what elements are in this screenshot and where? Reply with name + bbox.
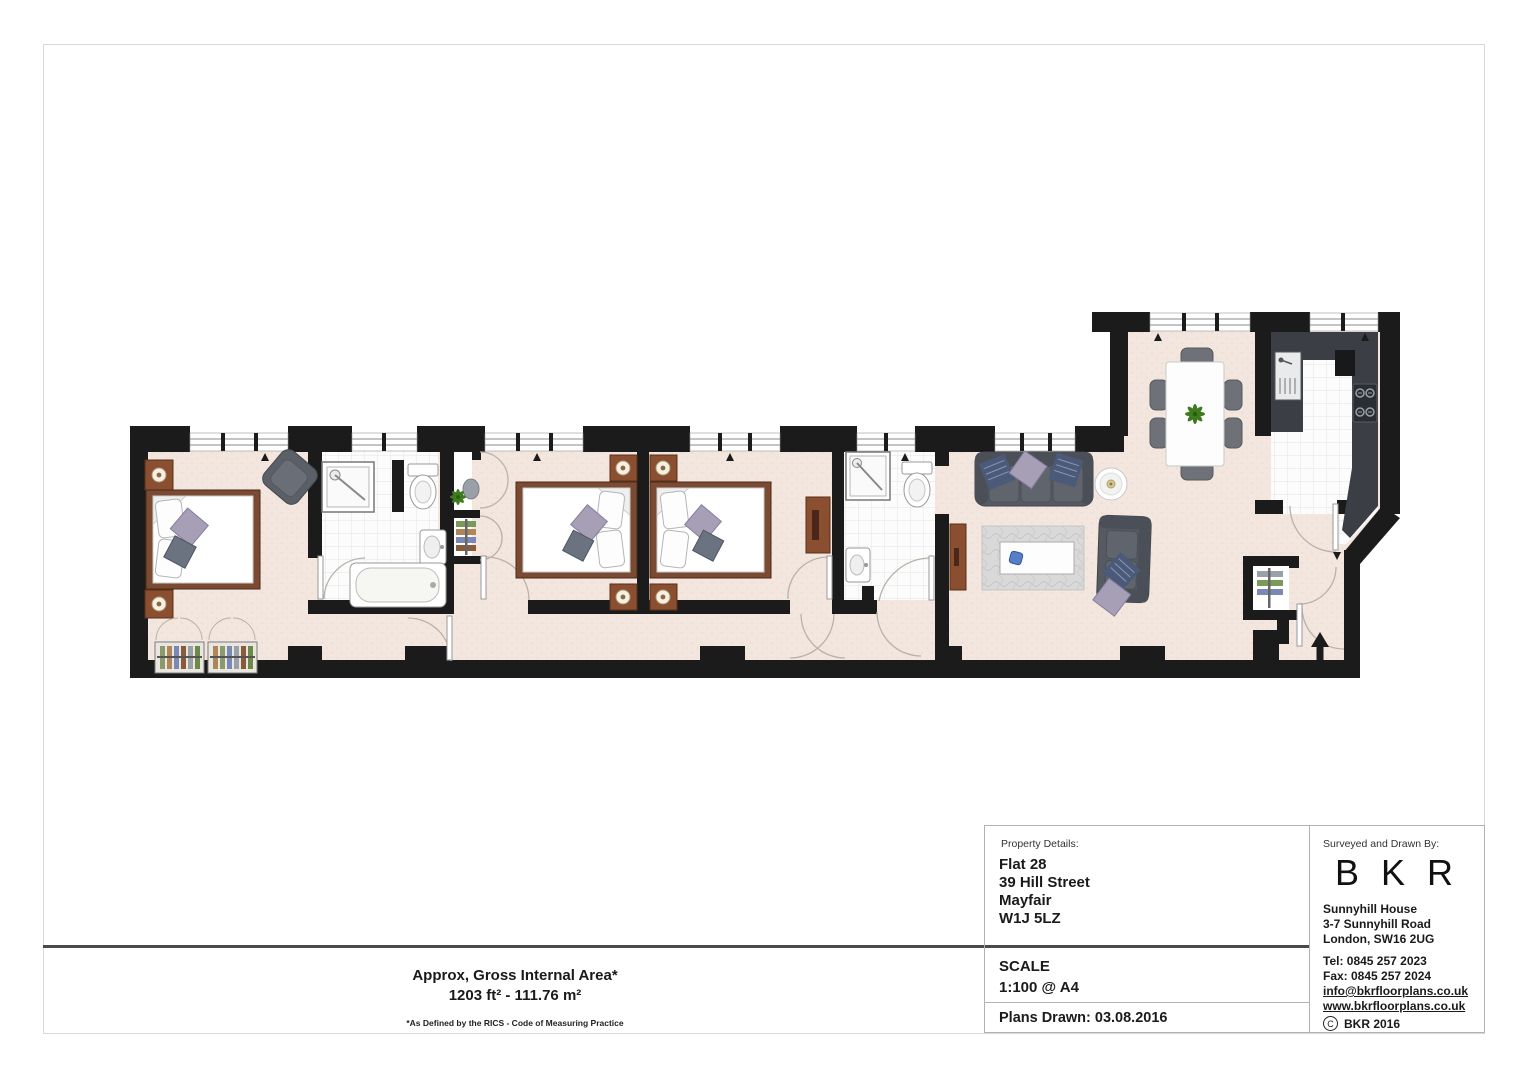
surveyor-label: Surveyed and Drawn By: xyxy=(1323,838,1439,850)
gross-internal-area-note: Approx, Gross Internal Area* 1203 ft² - … xyxy=(290,966,740,1028)
surveyor-address-line: Sunnyhill House xyxy=(1323,902,1434,917)
area-value: 1203 ft² - 111.76 m² xyxy=(290,986,740,1006)
sink-unit-icon xyxy=(1275,352,1301,400)
copyright-text: BKR 2016 xyxy=(1344,1017,1400,1031)
property-line: Flat 28 xyxy=(999,856,1090,874)
bkr-logo: B K R xyxy=(1310,852,1484,894)
surveyor-tel: Tel: 0845 257 2023 xyxy=(1323,954,1468,969)
floorplan-sheet: { "area_note": { "line1": "Approx, Gross… xyxy=(0,0,1528,1080)
surveyor-contact: Tel: 0845 257 2023 Fax: 0845 257 2024 in… xyxy=(1323,954,1468,1014)
plans-drawn-date: Plans Drawn: 03.08.2016 xyxy=(999,1010,1167,1026)
surveyor-email-link[interactable]: info@bkrfloorplans.co.uk xyxy=(1323,984,1468,999)
hanging-rail-icon xyxy=(456,519,476,555)
surveyor-address-line: London, SW16 2UG xyxy=(1323,932,1434,947)
area-footnote: *As Defined by the RICS - Code of Measur… xyxy=(290,1018,740,1028)
bathtub-icon xyxy=(350,563,446,607)
bedside-table-icon xyxy=(145,590,173,618)
double-bed-icon xyxy=(516,482,637,578)
surveyor-address-line: 3-7 Sunnyhill Road xyxy=(1323,917,1434,932)
basin-icon xyxy=(846,548,870,582)
sofa-3-seat-icon xyxy=(975,451,1093,506)
scale-divider xyxy=(985,1002,1309,1003)
sofa-2-seat-icon xyxy=(1092,515,1151,617)
copyright-line: C BKR 2016 xyxy=(1323,1016,1400,1031)
shower-icon xyxy=(322,462,374,512)
surveyor-website-link[interactable]: www.bkrfloorplans.co.uk xyxy=(1323,999,1468,1014)
area-title: Approx, Gross Internal Area* xyxy=(290,966,740,986)
shower-icon xyxy=(846,452,890,500)
property-line: 39 Hill Street xyxy=(999,874,1090,892)
scale-value: 1:100 @ A4 xyxy=(999,977,1079,998)
surveyor-box: Surveyed and Drawn By: B K R Sunnyhill H… xyxy=(1309,825,1485,1033)
property-line: W1J 5LZ xyxy=(999,910,1090,928)
property-address: Flat 28 39 Hill Street Mayfair W1J 5LZ xyxy=(999,856,1090,928)
plant-icon xyxy=(1185,404,1205,424)
double-bed-icon xyxy=(146,490,260,589)
copyright-icon: C xyxy=(1323,1016,1338,1031)
property-details-box: Property Details: Flat 28 39 Hill Street… xyxy=(984,825,1309,1033)
bedside-table-icon xyxy=(650,455,677,481)
round-side-table-icon xyxy=(1095,468,1127,500)
property-line: Mayfair xyxy=(999,892,1090,910)
property-details-label: Property Details: xyxy=(1001,838,1079,850)
bedside-table-icon xyxy=(650,584,677,610)
double-bed-icon xyxy=(650,482,771,578)
console-icon xyxy=(950,524,966,590)
bedside-table-icon xyxy=(610,584,637,610)
basin-icon xyxy=(420,530,446,564)
coffee-table-icon xyxy=(1000,542,1074,574)
appliance-icon xyxy=(1335,350,1355,376)
scale-label: SCALE xyxy=(999,956,1079,977)
scale-section: SCALE 1:100 @ A4 xyxy=(999,956,1079,998)
cabinet-icon xyxy=(806,497,830,553)
bedside-table-icon xyxy=(145,460,173,490)
surveyor-address: Sunnyhill House 3-7 Sunnyhill Road Londo… xyxy=(1323,902,1434,947)
surveyor-fax: Fax: 0845 257 2024 xyxy=(1323,969,1468,984)
stool-icon xyxy=(463,479,479,499)
plant-icon xyxy=(450,489,466,505)
toilet-icon xyxy=(902,462,932,507)
hob-icon xyxy=(1353,384,1377,422)
bedside-table-icon xyxy=(610,455,637,481)
toilet-icon xyxy=(408,464,438,509)
